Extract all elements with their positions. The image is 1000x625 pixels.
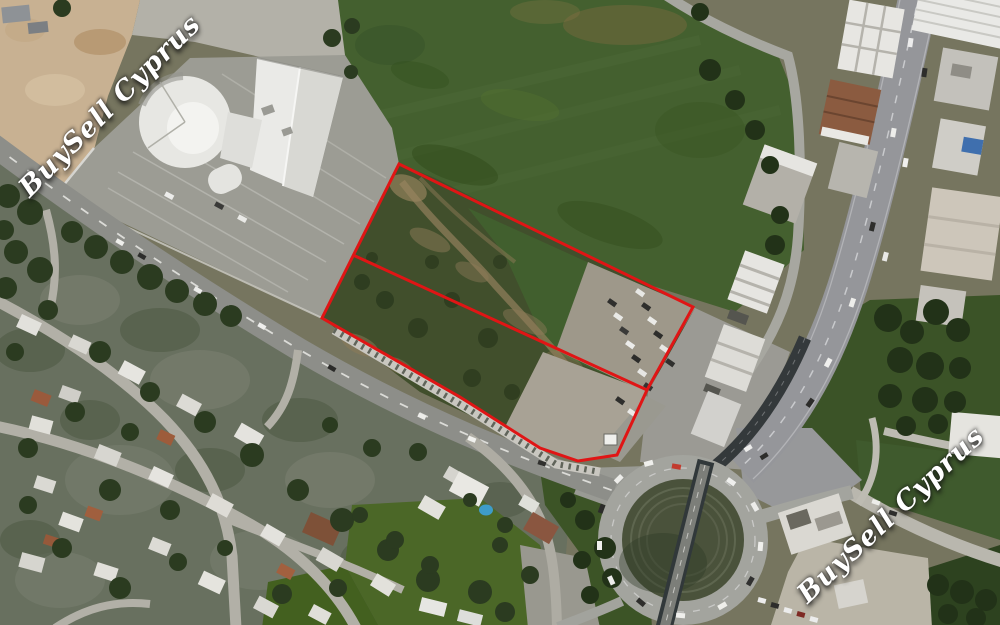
swimming-pool	[479, 505, 493, 516]
satellite-image: BuySell Cyprus BuySell Cyprus	[0, 0, 1000, 625]
roundabout	[598, 455, 768, 625]
